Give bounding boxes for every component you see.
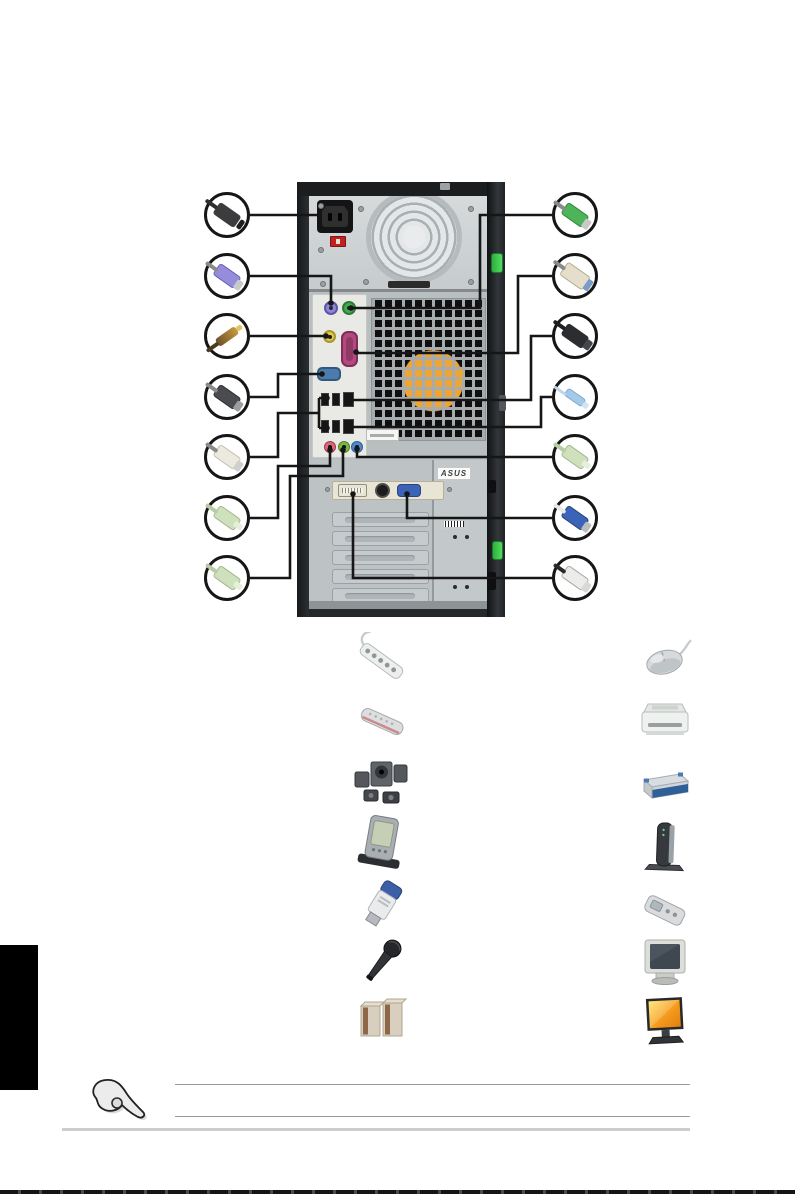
pointing-hand-icon bbox=[86, 1074, 156, 1126]
rivet bbox=[453, 535, 457, 539]
note-rule-bottom bbox=[175, 1116, 690, 1117]
ps2-keyboard-plug-icon bbox=[212, 263, 241, 289]
edge-detail bbox=[499, 395, 506, 411]
callout-parallel bbox=[552, 253, 598, 299]
expansion-slot-cover bbox=[332, 531, 429, 546]
ps2-keyboard-port bbox=[324, 301, 338, 315]
rivet bbox=[465, 585, 469, 589]
line-out-jack bbox=[338, 441, 350, 453]
ps2-mouse-plug-icon bbox=[560, 202, 589, 228]
microphone-icon bbox=[347, 932, 417, 992]
edge-detail bbox=[487, 480, 496, 493]
lan-port bbox=[343, 419, 354, 434]
screw bbox=[318, 203, 324, 209]
serial-number-label bbox=[366, 429, 399, 441]
chapter-side-tab bbox=[0, 945, 38, 1090]
parallel-db25-plug-icon bbox=[559, 261, 591, 290]
usb-type-a-plug-icon bbox=[212, 444, 241, 470]
peripheral-modem bbox=[630, 816, 700, 876]
callout-power-cord bbox=[204, 192, 250, 238]
callout-dvi bbox=[552, 555, 598, 601]
audio-mini-plug-icon bbox=[212, 505, 241, 531]
printer-icon bbox=[630, 690, 700, 750]
green-latch-clip bbox=[492, 541, 503, 560]
callout-usb bbox=[204, 434, 250, 480]
case-top-notch bbox=[440, 183, 450, 190]
ieee1394-plug-icon bbox=[560, 323, 589, 349]
callout-ps2-keyboard bbox=[204, 253, 250, 299]
callout-mic-plug bbox=[204, 495, 250, 541]
screw bbox=[363, 279, 369, 285]
lan-cable-plug-icon bbox=[563, 387, 586, 407]
expansion-slot-cover bbox=[332, 550, 429, 565]
callout-spdif bbox=[204, 313, 250, 359]
audio-mini-plug-icon bbox=[212, 565, 241, 591]
voltage-selector-switch bbox=[330, 236, 346, 247]
peripheral-speaker-pair bbox=[347, 989, 417, 1049]
screw bbox=[447, 487, 452, 492]
page-bottom-edge bbox=[0, 1190, 795, 1194]
psu-fan-grille bbox=[366, 190, 462, 284]
screw bbox=[325, 487, 330, 492]
crt-monitor-icon bbox=[630, 930, 700, 990]
callout-line-in-plug bbox=[552, 434, 598, 480]
screw bbox=[468, 206, 474, 212]
psu-vent-slot bbox=[388, 281, 430, 288]
vga-port bbox=[397, 484, 421, 497]
parallel-port bbox=[341, 331, 358, 367]
edge-detail bbox=[487, 572, 496, 590]
note-rule-top bbox=[175, 1084, 690, 1085]
callout-line-out-plug bbox=[204, 555, 250, 601]
callout-serial bbox=[204, 374, 250, 420]
screw bbox=[468, 279, 474, 285]
serial-db9-plug-icon bbox=[212, 384, 241, 410]
usb-port bbox=[332, 393, 340, 406]
screw bbox=[318, 247, 324, 253]
spdif-coaxial-plug-icon bbox=[215, 325, 240, 346]
speaker-pair-icon bbox=[347, 989, 417, 1049]
callout-ps2-mouse bbox=[552, 192, 598, 238]
barcode-sticker bbox=[441, 519, 467, 529]
peripheral-surround-speakers bbox=[347, 750, 417, 810]
peripheral-mouse bbox=[630, 630, 700, 690]
ac-pin bbox=[328, 213, 332, 221]
peripheral-pda bbox=[347, 812, 417, 872]
asus-logo-sticker: ASUS bbox=[437, 467, 471, 480]
dvi-plug-icon bbox=[560, 565, 589, 591]
ps2-mouse-port bbox=[342, 301, 356, 315]
power-cord-plug-icon bbox=[212, 202, 241, 228]
usb-port bbox=[321, 393, 329, 406]
callout-1394 bbox=[552, 313, 598, 359]
dvi-port bbox=[338, 484, 367, 497]
surround-speakers-icon bbox=[347, 750, 417, 810]
usb-port bbox=[332, 420, 340, 433]
external-drive-icon bbox=[630, 756, 700, 816]
callout-vga bbox=[552, 495, 598, 541]
remote-control-icon bbox=[347, 692, 417, 752]
manual-page: ASUS bbox=[0, 0, 795, 1197]
peripheral-microphone bbox=[347, 932, 417, 992]
peripheral-remote-control bbox=[347, 692, 417, 752]
vga-plug-icon bbox=[560, 505, 589, 531]
ieee1394-port bbox=[343, 392, 354, 407]
usb-port bbox=[321, 420, 329, 433]
case-bottom bbox=[309, 601, 487, 609]
microphone-jack bbox=[324, 441, 336, 453]
peripheral-usb-flash-drive bbox=[347, 875, 417, 935]
ac-pin bbox=[338, 213, 342, 221]
screw bbox=[358, 206, 364, 212]
mouse-icon bbox=[630, 630, 700, 690]
spdif-coaxial-out-port bbox=[323, 330, 336, 343]
peripheral-crt-monitor bbox=[630, 930, 700, 990]
expansion-slot-cover bbox=[332, 512, 429, 527]
peripheral-power-strip bbox=[347, 632, 417, 692]
lcd-monitor-icon bbox=[630, 990, 700, 1050]
green-latch-clip bbox=[491, 253, 503, 273]
chassis-vent-grid bbox=[371, 298, 486, 441]
modem-icon bbox=[630, 816, 700, 876]
rivet bbox=[453, 585, 457, 589]
ac-socket bbox=[322, 206, 348, 227]
rivet bbox=[465, 535, 469, 539]
power-strip-icon bbox=[347, 632, 417, 692]
expansion-slot-cover bbox=[332, 569, 429, 584]
section-divider-rule bbox=[62, 1128, 690, 1131]
screw bbox=[320, 281, 326, 287]
peripheral-lcd-monitor bbox=[630, 990, 700, 1050]
line-in-jack bbox=[351, 441, 363, 453]
peripheral-printer bbox=[630, 690, 700, 750]
callout-lan bbox=[552, 374, 598, 420]
pda-icon bbox=[347, 812, 417, 872]
peripheral-external-drive bbox=[630, 756, 700, 816]
case-left-edge bbox=[297, 196, 309, 617]
svideo-port bbox=[375, 483, 390, 498]
case-top-edge bbox=[297, 182, 505, 196]
case-bottom-edge bbox=[309, 609, 487, 617]
serial-port bbox=[317, 367, 341, 381]
audio-mini-plug-icon bbox=[560, 444, 589, 470]
usb-flash-drive-icon bbox=[347, 875, 417, 935]
